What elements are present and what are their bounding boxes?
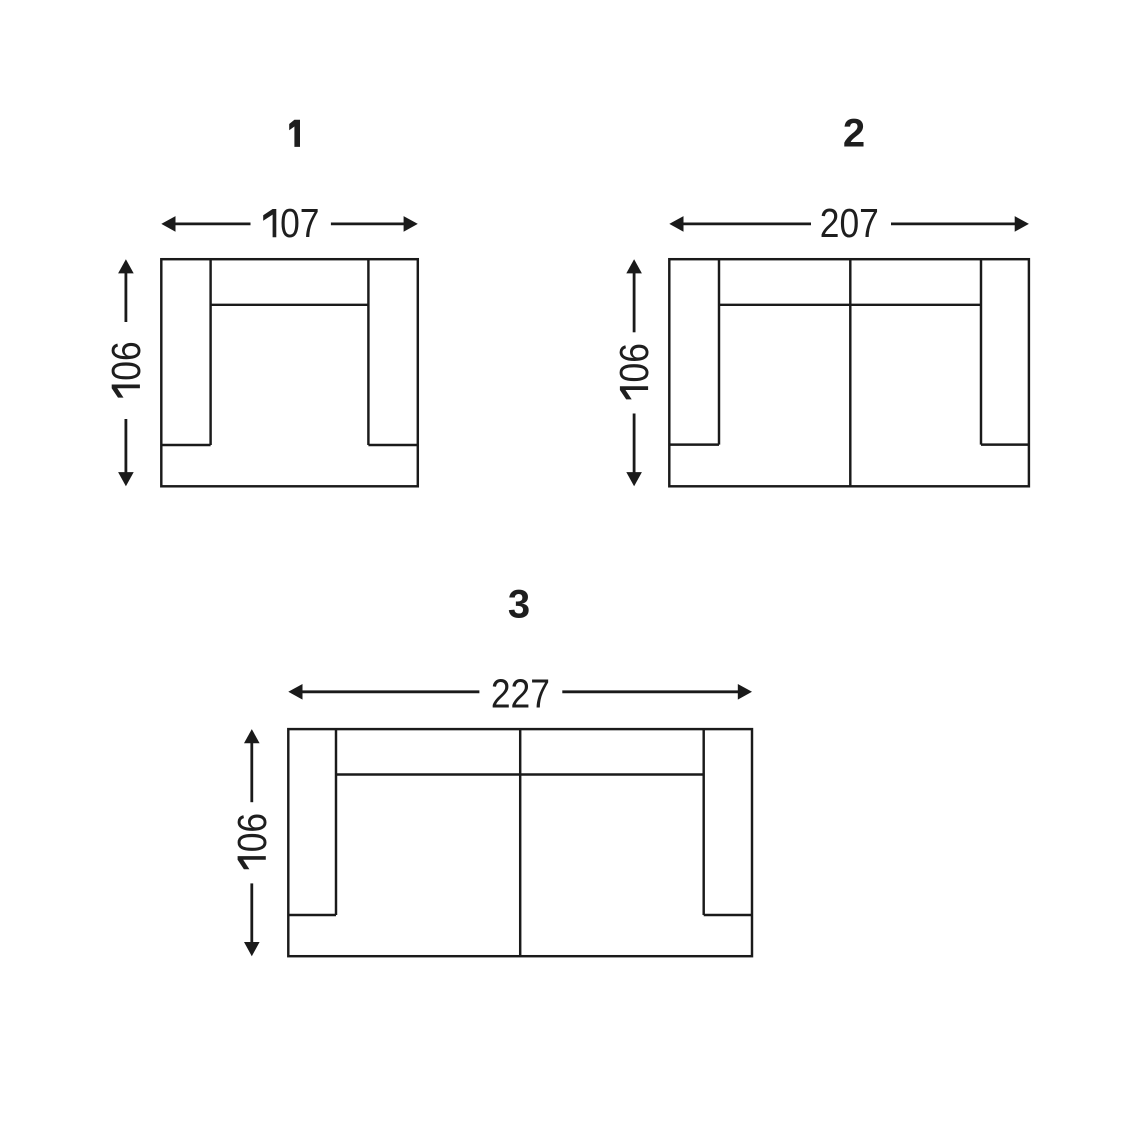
svg-text:07: 07 [280, 202, 319, 247]
svg-text:06: 06 [613, 343, 658, 382]
svg-text:3: 3 [508, 583, 530, 627]
svg-text:06: 06 [105, 341, 150, 380]
svg-text:207: 207 [820, 202, 879, 247]
svg-text:06: 06 [231, 813, 276, 852]
svg-text:227: 227 [491, 672, 550, 717]
svg-text:2: 2 [843, 112, 865, 156]
